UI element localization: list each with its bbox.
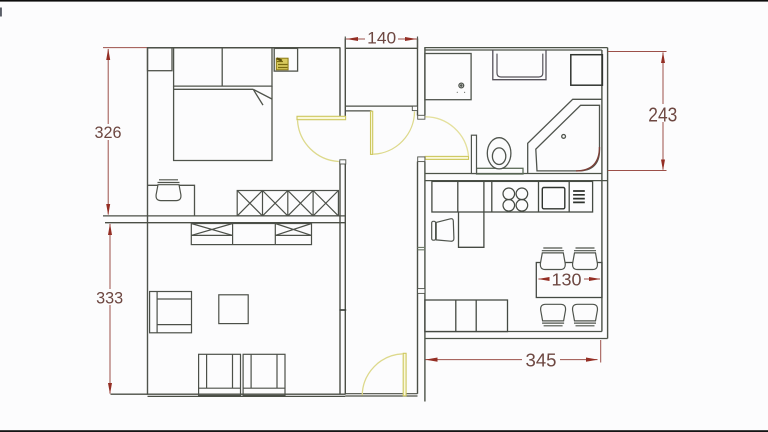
svg-text:243: 243	[648, 104, 677, 126]
svg-text:140: 140	[367, 29, 396, 48]
svg-text:333: 333	[96, 289, 123, 308]
svg-text:345: 345	[526, 350, 557, 371]
svg-text:326: 326	[95, 123, 122, 142]
svg-text:130: 130	[552, 270, 582, 290]
